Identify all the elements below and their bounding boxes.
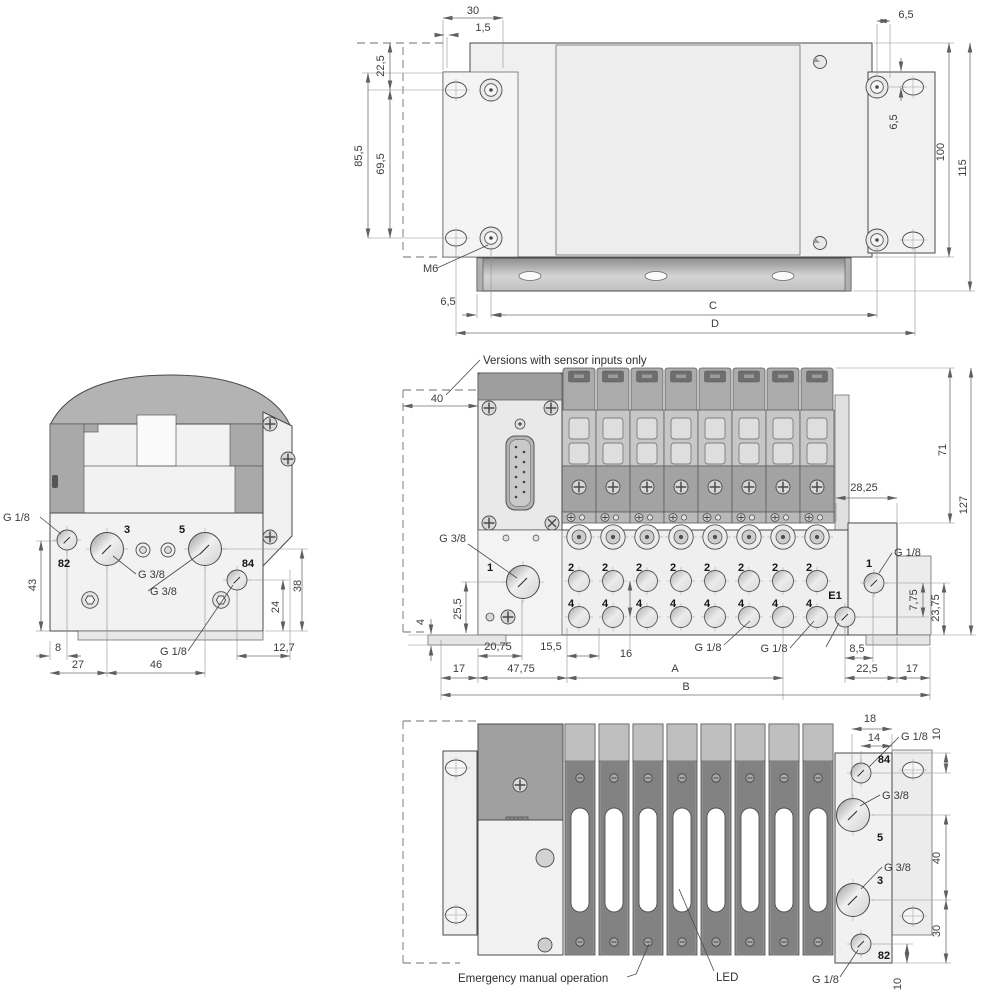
pin-hole-icon — [814, 237, 827, 250]
dim-28-25: 28,25 — [850, 482, 878, 494]
svg-text:2: 2 — [704, 562, 710, 574]
dim-18: 18 — [864, 713, 876, 725]
port-label-5: 5 — [179, 524, 185, 536]
dim-a: A — [671, 663, 679, 675]
port-label-5-bottom: 5 — [877, 832, 883, 844]
svg-text:4: 4 — [568, 598, 575, 610]
valve-slices-bottom — [565, 724, 833, 955]
dim-16: 16 — [620, 648, 632, 660]
callout-g38-p3: G 3/8 — [138, 569, 165, 581]
dim-22-5: 22,5 — [375, 55, 387, 76]
phillips-screw-icon — [482, 401, 496, 415]
dim-17-left: 17 — [453, 663, 465, 675]
dim-38: 38 — [292, 580, 304, 592]
pilot-hole-icon — [161, 543, 175, 557]
phillips-screw-icon — [501, 610, 515, 624]
callout-g18-b: G 1/8 — [761, 643, 788, 655]
svg-text:2: 2 — [738, 562, 744, 574]
dim-4: 4 — [415, 619, 427, 625]
dim-23-75: 23,75 — [930, 594, 942, 622]
port-label-84: 84 — [242, 558, 255, 570]
svg-text:4: 4 — [670, 598, 677, 610]
port-label-84-bottom: 84 — [878, 754, 891, 766]
label-m6: M6 — [423, 263, 438, 275]
callout-g38-p3-bottom: G 3/8 — [884, 862, 911, 874]
foot — [78, 631, 263, 640]
left-end-plate — [443, 72, 518, 257]
svg-text:2: 2 — [636, 562, 642, 574]
dim-40-bottom: 40 — [931, 852, 943, 864]
callout-g18-right: G 1/8 — [894, 547, 921, 559]
callout-g18-p84: G 1/8 — [160, 646, 187, 658]
m6-screw-icon — [480, 79, 502, 101]
callout-g38-p5-bottom: G 3/8 — [882, 790, 909, 802]
svg-text:2: 2 — [568, 562, 574, 574]
callout-g18-top-bottomview: G 1/8 — [901, 731, 928, 743]
dim-100: 100 — [935, 143, 947, 161]
callout-g38-p5: G 3/8 — [150, 586, 177, 598]
drawing-canvas: 30 1,5 22,5 69,5 85,5 M6 6,5 C D 6,5 6,5… — [0, 0, 985, 1000]
dim-10-top: 10 — [931, 728, 943, 740]
dim-20-75: 20,75 — [484, 641, 512, 653]
dim-6-5-bottom: 6,5 — [440, 296, 455, 308]
callout-g18: G 1/8 — [3, 512, 30, 524]
m6-screw-icon — [480, 227, 502, 249]
side-view: G 1/8 82 3 5 84 G 3/8 G 3/8 G 1/8 43 8 2… — [3, 375, 308, 677]
dimensional-drawing: 30 1,5 22,5 69,5 85,5 M6 6,5 C D 6,5 6,5… — [0, 0, 985, 1000]
foot-right — [866, 635, 930, 645]
callout-g18-bottom: G 1/8 — [812, 974, 839, 986]
m6-screw-icon — [866, 76, 888, 98]
callout-g18-a: G 1/8 — [695, 642, 722, 654]
callout-led: LED — [716, 972, 738, 984]
dim-12-7: 12,7 — [273, 642, 294, 654]
svg-text:2: 2 — [670, 562, 676, 574]
dim-127: 127 — [958, 496, 970, 514]
phillips-screw-icon — [281, 452, 295, 466]
dim-25-5: 25,5 — [452, 598, 464, 619]
dim-69-5: 69,5 — [375, 153, 387, 174]
svg-text:2: 2 — [602, 562, 608, 574]
port-label-82: 82 — [58, 558, 70, 570]
port-label-3: 3 — [124, 524, 130, 536]
dim-1-5: 1,5 — [475, 22, 490, 34]
svg-text:2: 2 — [772, 562, 778, 574]
phillips-screw-icon — [513, 778, 527, 792]
sensor-note: Versions with sensor inputs only — [483, 355, 647, 367]
bottom-view: 18 14 G 1/8 10 84 G 3/8 5 G 3/8 3 40 30 … — [403, 713, 951, 990]
svg-text:4: 4 — [806, 598, 813, 610]
dim-d: D — [711, 318, 719, 330]
svg-text:4: 4 — [772, 598, 779, 610]
dim-8-5: 8,5 — [849, 643, 864, 655]
dim-c: C — [709, 300, 717, 312]
dim-10-bottom: 10 — [892, 978, 904, 990]
port-label-3-bottom: 3 — [877, 875, 883, 887]
dim-8: 8 — [55, 642, 61, 654]
pin-hole-icon — [814, 56, 827, 69]
port-label-1-left: 1 — [487, 562, 493, 574]
dim-30: 30 — [931, 925, 943, 937]
dim-115: 115 — [957, 159, 969, 177]
dim-27: 27 — [72, 659, 84, 671]
pilot-hole-icon — [136, 543, 150, 557]
phillips-screw-icon — [544, 401, 558, 415]
dim-43: 43 — [27, 579, 39, 591]
dim-30: 30 — [467, 5, 479, 17]
m6-screw-icon — [866, 229, 888, 251]
svg-text:4: 4 — [636, 598, 643, 610]
dim-22-5-front: 22,5 — [856, 663, 877, 675]
phillips-screw-icon — [263, 417, 277, 431]
dim-7-75: 7,75 — [908, 589, 920, 610]
phillips-screw-icon — [482, 516, 496, 530]
port-label-e1: E1 — [828, 590, 841, 602]
port-label-1-right: 1 — [866, 558, 872, 570]
svg-text:4: 4 — [704, 598, 711, 610]
callout-emergency-manual-operation: Emergency manual operation — [458, 973, 608, 985]
electrical-end-plate — [478, 373, 562, 530]
svg-text:4: 4 — [602, 598, 609, 610]
right-end-plate-bottom — [835, 753, 892, 963]
port-label-82-bottom: 82 — [878, 950, 890, 962]
phillips-screw-icon — [263, 530, 277, 544]
dim-71: 71 — [937, 444, 949, 456]
dim-47-75: 47,75 — [507, 663, 535, 675]
electrical-end-plate-bottom — [478, 724, 563, 955]
dim-17-right: 17 — [906, 663, 918, 675]
dsub-connector-icon — [506, 436, 534, 510]
dim-24: 24 — [270, 601, 282, 613]
manifold-body — [556, 45, 800, 255]
slotted-screw-icon — [545, 516, 559, 530]
dim-46: 46 — [150, 659, 162, 671]
hex-socket-screw-icon — [82, 592, 99, 609]
front-view: Versions with sensor inputs only 40 G 3/… — [403, 355, 976, 700]
dim-6-5-vert: 6,5 — [888, 114, 900, 129]
dim-14: 14 — [868, 732, 880, 744]
mounting-rail — [477, 258, 851, 291]
valve-slices-front — [562, 368, 834, 523]
top-view: 30 1,5 22,5 69,5 85,5 M6 6,5 C D 6,5 6,5… — [353, 5, 975, 336]
dim-15-5: 15,5 — [540, 641, 561, 653]
dim-b: B — [682, 681, 689, 693]
right-bracket — [868, 72, 935, 253]
svg-text:2: 2 — [806, 562, 812, 574]
dim-85-5: 85,5 — [353, 145, 365, 166]
svg-text:4: 4 — [738, 598, 745, 610]
dim-6-5-top: 6,5 — [898, 9, 913, 21]
callout-g38-front: G 3/8 — [439, 533, 466, 545]
dim-40: 40 — [431, 393, 443, 405]
